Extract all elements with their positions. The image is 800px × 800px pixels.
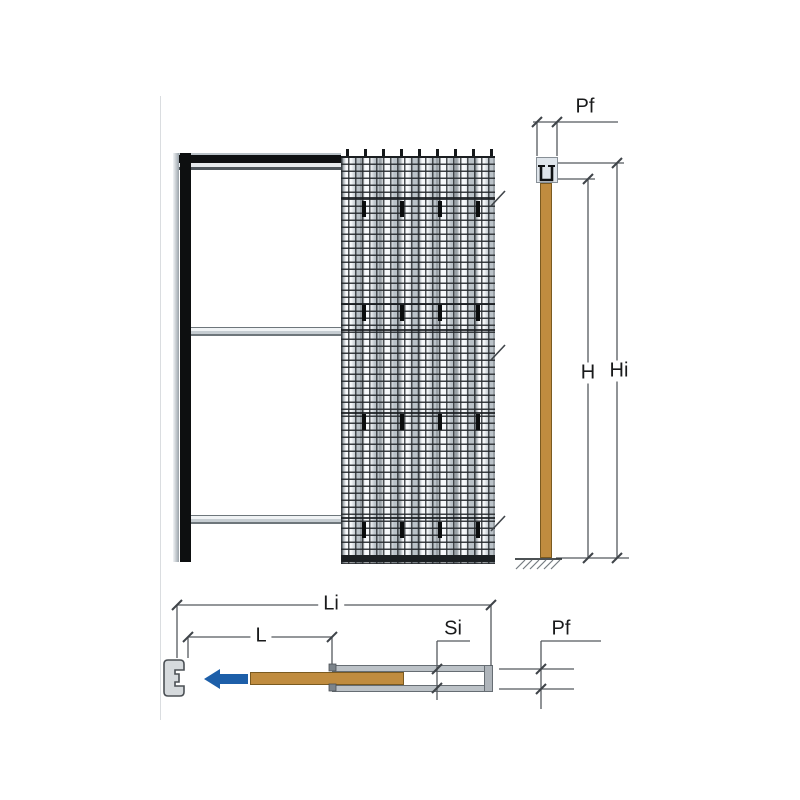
dim-pf-side-lines bbox=[533, 122, 618, 156]
pocket-top-rail bbox=[332, 665, 493, 672]
mesh-clip-dash bbox=[362, 414, 366, 430]
dim-pf-plan-lines bbox=[499, 641, 601, 709]
horizontal-crossbar-lower bbox=[191, 515, 341, 524]
dim-label-pf-plan: Pf bbox=[547, 619, 576, 640]
dim-label-si: Si bbox=[439, 619, 467, 640]
jamb-profile bbox=[164, 660, 184, 696]
dim-label-hi: Hi bbox=[605, 361, 634, 382]
mesh-top-tab bbox=[418, 149, 421, 156]
mesh-top-tab bbox=[346, 149, 349, 156]
mesh-clip-dash bbox=[362, 201, 366, 217]
mesh-panel bbox=[341, 156, 495, 564]
door-leaf-side bbox=[540, 183, 552, 558]
mesh-bottom-rail bbox=[341, 555, 495, 562]
dim-label-h: H bbox=[576, 363, 600, 384]
mesh-clip-dash bbox=[476, 201, 480, 217]
mesh-stiffener bbox=[341, 329, 495, 331]
mesh-clip-dash bbox=[400, 522, 404, 538]
technical-drawing: Pf H Hi Li L Si Pf bbox=[0, 0, 800, 800]
mesh-clip-dash bbox=[400, 414, 404, 430]
left-jamb bbox=[180, 153, 191, 562]
mesh-top-tab bbox=[364, 149, 367, 156]
mesh-clip-dash bbox=[476, 305, 480, 321]
mesh-stiffener bbox=[341, 303, 495, 305]
pocket-end-cap bbox=[484, 665, 493, 692]
mesh-clip-dash bbox=[476, 414, 480, 430]
dim-label-li: Li bbox=[318, 594, 344, 615]
mesh-top-tab bbox=[382, 149, 385, 156]
slide-direction-arrow-icon bbox=[204, 669, 248, 689]
top-track bbox=[173, 153, 341, 170]
mesh-stiffener bbox=[341, 517, 495, 519]
mesh-stiffener bbox=[341, 412, 495, 414]
mesh-clip-dash bbox=[438, 522, 442, 538]
mesh-clip-dash bbox=[438, 201, 442, 217]
mesh-stiffener bbox=[341, 197, 495, 199]
mesh-top-tab bbox=[436, 149, 439, 156]
mesh-top-tab bbox=[472, 149, 475, 156]
dim-label-l: L bbox=[250, 626, 271, 647]
horizontal-crossbar-upper bbox=[191, 327, 341, 336]
dim-label-pf-side: Pf bbox=[571, 97, 600, 118]
mesh-clip-dash bbox=[362, 305, 366, 321]
door-leaf-plan bbox=[250, 672, 404, 685]
left-jamb-trim bbox=[173, 153, 179, 562]
mesh-clip-dash bbox=[438, 305, 442, 321]
pocket-bottom-rail bbox=[332, 685, 493, 692]
mesh-top-tab bbox=[454, 149, 457, 156]
track-cross-section bbox=[536, 157, 558, 183]
mesh-clip-dash bbox=[476, 522, 480, 538]
mesh-clip-dash bbox=[362, 522, 366, 538]
mesh-top-tab bbox=[490, 149, 493, 156]
mesh-top-tab bbox=[400, 149, 403, 156]
floor-hatch bbox=[515, 559, 562, 569]
mesh-clip-dash bbox=[400, 305, 404, 321]
mesh-clip-dash bbox=[400, 201, 404, 217]
mesh-clip-dash bbox=[438, 414, 442, 430]
drawing-left-edge bbox=[160, 96, 161, 720]
